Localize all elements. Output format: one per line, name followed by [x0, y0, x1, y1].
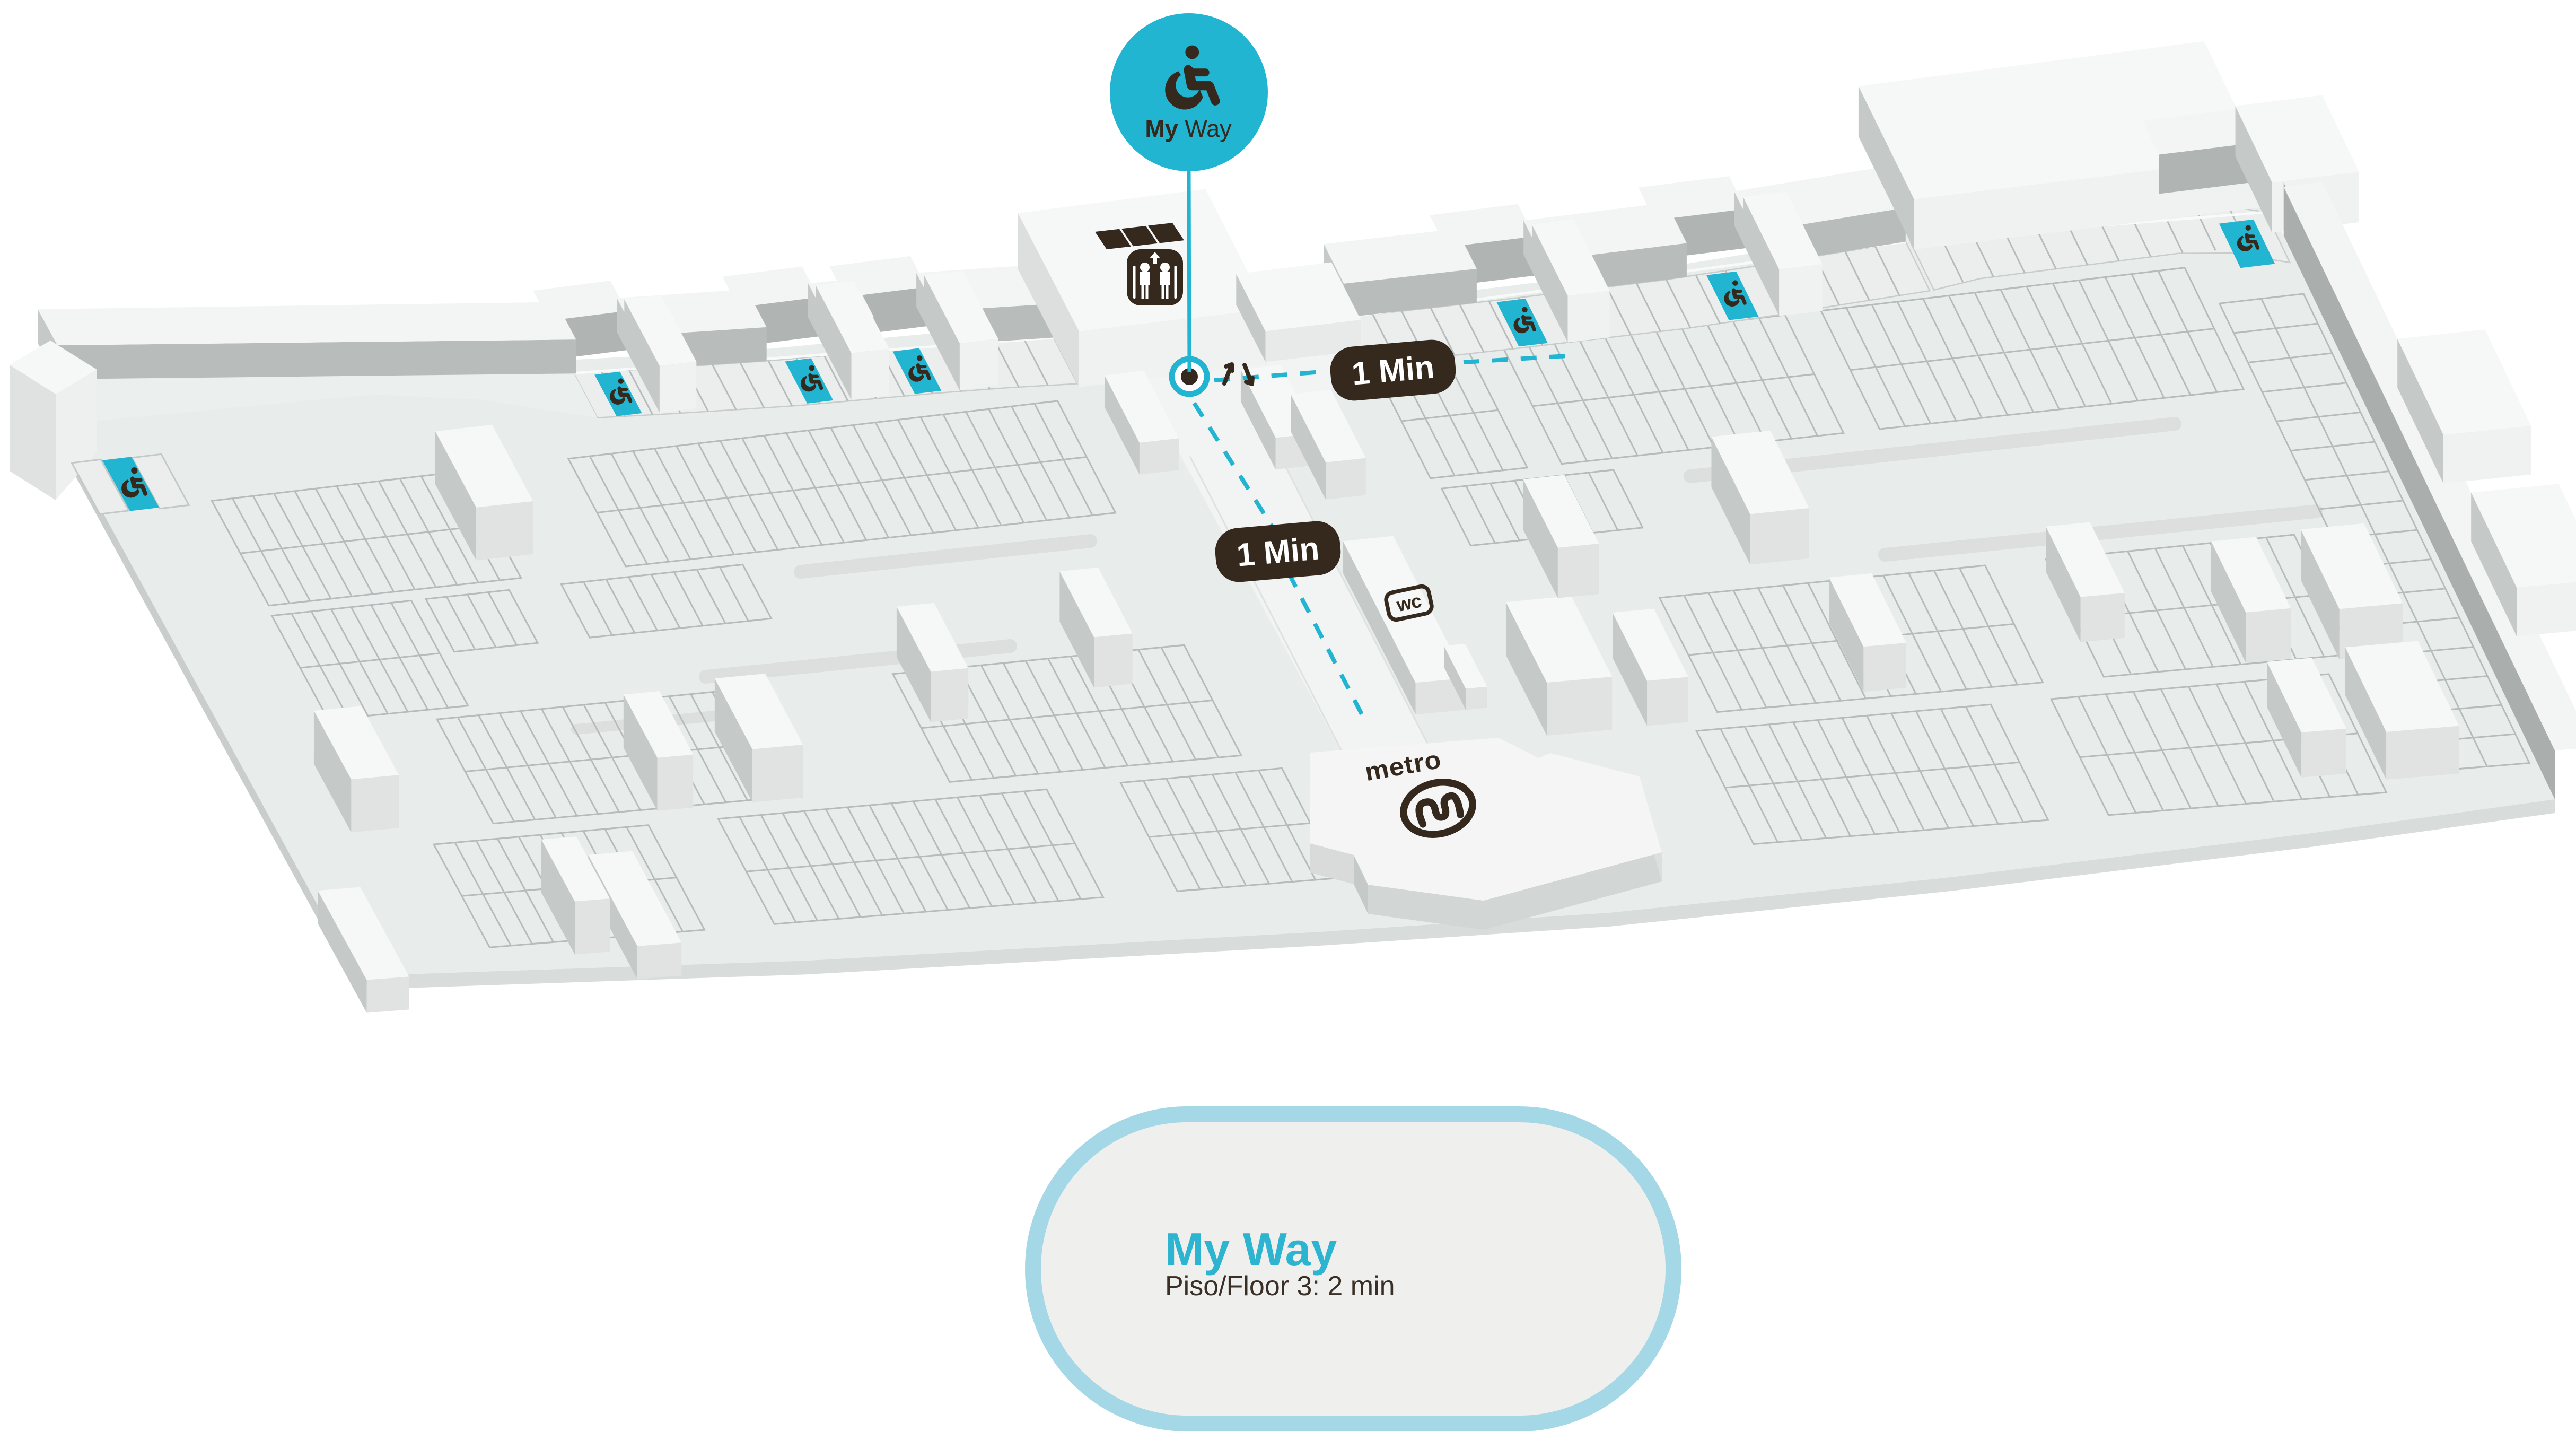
svg-text:My Way: My Way: [1145, 115, 1232, 142]
svg-text:1 Min: 1 Min: [1350, 348, 1435, 391]
svg-text:Piso/Floor 3: 2 min: Piso/Floor 3: 2 min: [1165, 1271, 1395, 1302]
svg-text:1 Min: 1 Min: [1235, 530, 1320, 573]
svg-text:My Way: My Way: [1165, 1223, 1337, 1276]
